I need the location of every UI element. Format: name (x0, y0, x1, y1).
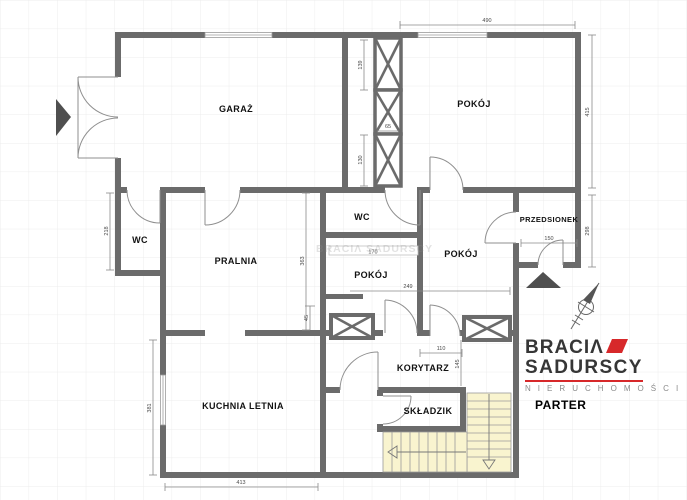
room-label-pokoj-center-left: POKÓJ (354, 269, 388, 280)
room-label-kuchnia: KUCHNIA LETNIA (202, 401, 284, 411)
room-label-skladzik: SKŁADZIK (404, 406, 453, 416)
room-label-pralnia: PRALNIA (215, 256, 258, 266)
agency-logo: BRACIΛ SADURSCY N I E R U C H O M O Ś C … (525, 338, 655, 412)
svg-text:65: 65 (385, 124, 391, 130)
window-kuchnia-left (161, 375, 166, 425)
logo-brand-line1: BRACIΛ (525, 338, 655, 357)
svg-text:110: 110 (437, 346, 446, 352)
svg-text:218: 218 (104, 226, 110, 235)
svg-text:490: 490 (482, 18, 491, 24)
logo-red-rule (525, 380, 643, 382)
svg-text:150: 150 (544, 236, 553, 242)
window-garage-top (205, 33, 272, 38)
floor-label: PARTER (535, 398, 655, 412)
svg-text:139: 139 (358, 60, 364, 69)
floor-plan-canvas: 170 490 (0, 0, 687, 500)
svg-text:45: 45 (304, 315, 310, 321)
svg-text:249: 249 (403, 284, 412, 290)
logo-subtitle: N I E R U C H O M O Ś C I (525, 384, 655, 393)
room-label-pokoj-top: POKÓJ (457, 98, 491, 109)
room-label-wc-left: WC (132, 235, 148, 245)
logo-brand-text1: BRACIΛ (525, 338, 604, 357)
svg-text:130: 130 (358, 155, 364, 164)
room-label-pokoj-center-right: POKÓJ (444, 248, 478, 259)
window-pokoj-top (418, 33, 487, 38)
watermark: BRACIΛ SADURSCY (316, 243, 433, 255)
svg-text:363: 363 (300, 256, 306, 265)
room-label-przedsionek: PRZEDSIONEK (520, 215, 579, 224)
chimney-shaft-column (375, 38, 401, 186)
svg-text:381: 381 (147, 403, 153, 412)
svg-text:415: 415 (585, 107, 591, 116)
svg-text:413: 413 (236, 480, 245, 486)
logo-brand-line2: SADURSCY (525, 358, 655, 377)
svg-text:145: 145 (455, 359, 461, 368)
chimney-box-right (464, 317, 510, 340)
room-label-korytarz: KORYTARZ (397, 363, 449, 373)
room-label-garaz: GARAŻ (219, 104, 253, 114)
logo-roof-mark-icon (606, 339, 628, 354)
chimney-box-left (331, 315, 373, 338)
svg-text:298: 298 (585, 226, 591, 235)
room-label-wc-center: WC (354, 212, 370, 222)
